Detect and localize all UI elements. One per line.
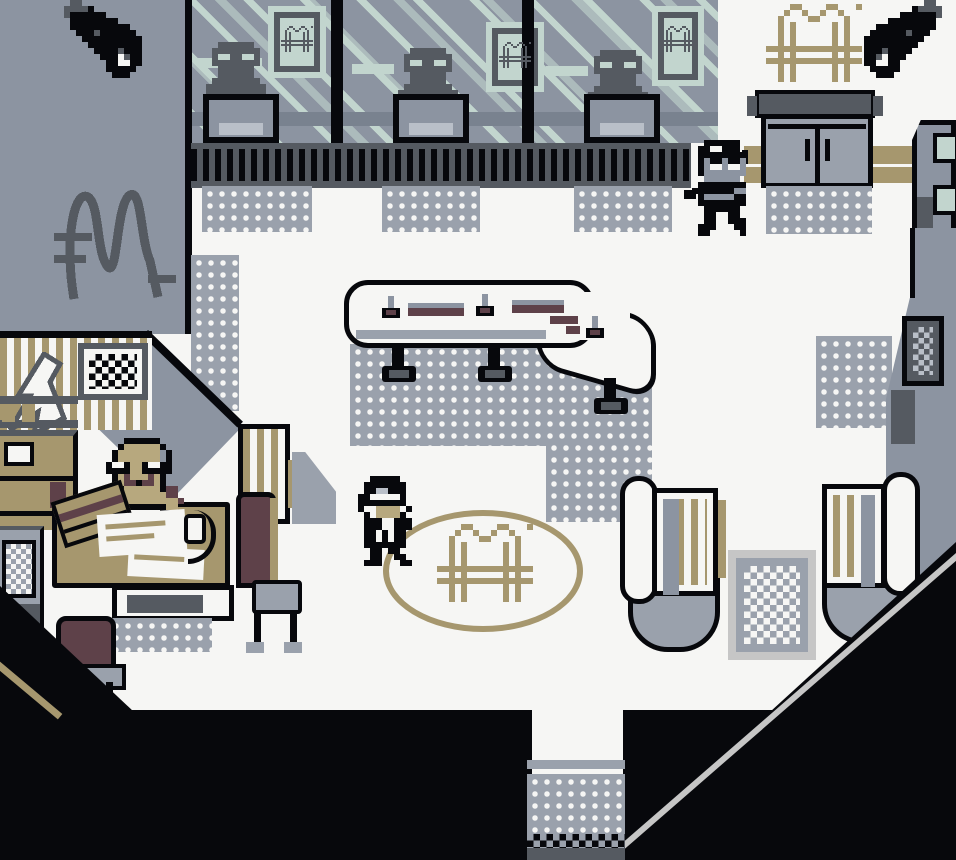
security-camera-left[interactable] [52, 0, 148, 78]
counter-leg-2 [478, 346, 512, 382]
pen-chain-3 [550, 316, 578, 324]
floor-shadow-3 [574, 186, 672, 232]
player-character-suit[interactable] [352, 476, 418, 566]
desk-chair[interactable] [236, 492, 302, 656]
pen-chain-3b [566, 326, 580, 334]
void-bottom-left [0, 710, 532, 860]
chess-table-mat [2, 540, 36, 598]
desk-cup [184, 514, 206, 544]
ninja-npc[interactable] [692, 140, 752, 236]
window-divider-1 [331, 0, 343, 143]
floor-shadow-2 [382, 186, 480, 232]
teller-window-3[interactable] [584, 94, 660, 143]
counter-leg-3 [594, 378, 628, 414]
coffee-table-mat [744, 566, 800, 644]
glass-ledge-3 [546, 66, 588, 76]
bench-left[interactable] [618, 470, 726, 660]
ticket-block-1 [2, 404, 15, 422]
ticket-rail-top [0, 396, 78, 404]
window-divider-2 [522, 0, 534, 143]
entrance-threshold[interactable] [527, 760, 625, 860]
pen-stand-1[interactable] [382, 296, 400, 318]
cabinet-side-tab-left [747, 96, 757, 116]
frame-logo-1 [281, 26, 313, 52]
right-wall-shade [891, 390, 915, 444]
teller-window-1[interactable] [203, 94, 279, 143]
locker-window-top [933, 133, 956, 163]
frame-logo-3 [662, 26, 694, 52]
game-viewport[interactable] [0, 0, 956, 860]
cabinet-side-tab-right [873, 96, 883, 116]
counter-shade [356, 330, 546, 339]
cabinet-shadow [766, 186, 872, 234]
cabinet[interactable] [761, 114, 873, 188]
shelf-box [4, 442, 34, 466]
locker-window-bottom [933, 185, 956, 215]
glass-ledge-2 [352, 64, 394, 74]
pen-chain-1b [408, 308, 464, 316]
shelf-line-1 [0, 476, 73, 481]
teller-window-2[interactable] [393, 94, 469, 143]
counter-leg-1 [382, 346, 416, 382]
nook-wall-top-line [0, 331, 152, 338]
teller-npc-1[interactable] [206, 42, 266, 96]
frame-logo-2 [499, 42, 531, 68]
floor-shadow-right [816, 336, 892, 428]
wall-keypad[interactable] [902, 316, 944, 386]
security-camera-right[interactable] [858, 0, 954, 78]
coffee-table[interactable] [728, 550, 816, 660]
pen-stand-2[interactable] [476, 294, 494, 316]
cabinet-handle-right[interactable] [825, 139, 830, 161]
counter-grate [191, 143, 691, 188]
cabinet-handle-left[interactable] [805, 139, 810, 161]
pen-chain-2b [512, 305, 564, 313]
zigzag-sign [78, 343, 148, 400]
pen-stand-3[interactable] [586, 316, 604, 338]
cabinet-door-split [815, 127, 820, 185]
floor-shadow-1 [202, 186, 312, 232]
graffiti-m [52, 145, 192, 307]
wall-logo-m [766, 4, 862, 82]
floor-logo-m [437, 524, 533, 602]
ticket-block-2 [22, 404, 35, 422]
